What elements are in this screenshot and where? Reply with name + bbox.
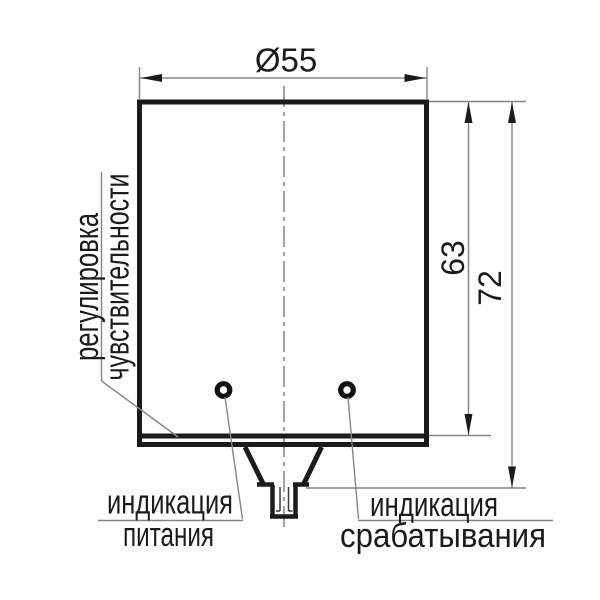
overall-height-dimension-text: 72 (472, 270, 508, 306)
power-label-line2: питания (123, 516, 214, 554)
output-label-line2: срабатывания (340, 517, 546, 555)
output-led-indicator (341, 384, 354, 397)
diameter-dimension-text: Ø55 (255, 42, 317, 79)
power-led-indicator (217, 384, 230, 397)
sensor-dimension-drawing: Ø55 63 72 регулировка чувствительности и… (0, 0, 600, 600)
technical-drawing-page: Ø55 63 72 регулировка чувствительности и… (0, 0, 600, 600)
body-height-dimension-text: 63 (435, 240, 471, 276)
sensitivity-label-line2: чувствительности (99, 173, 137, 380)
